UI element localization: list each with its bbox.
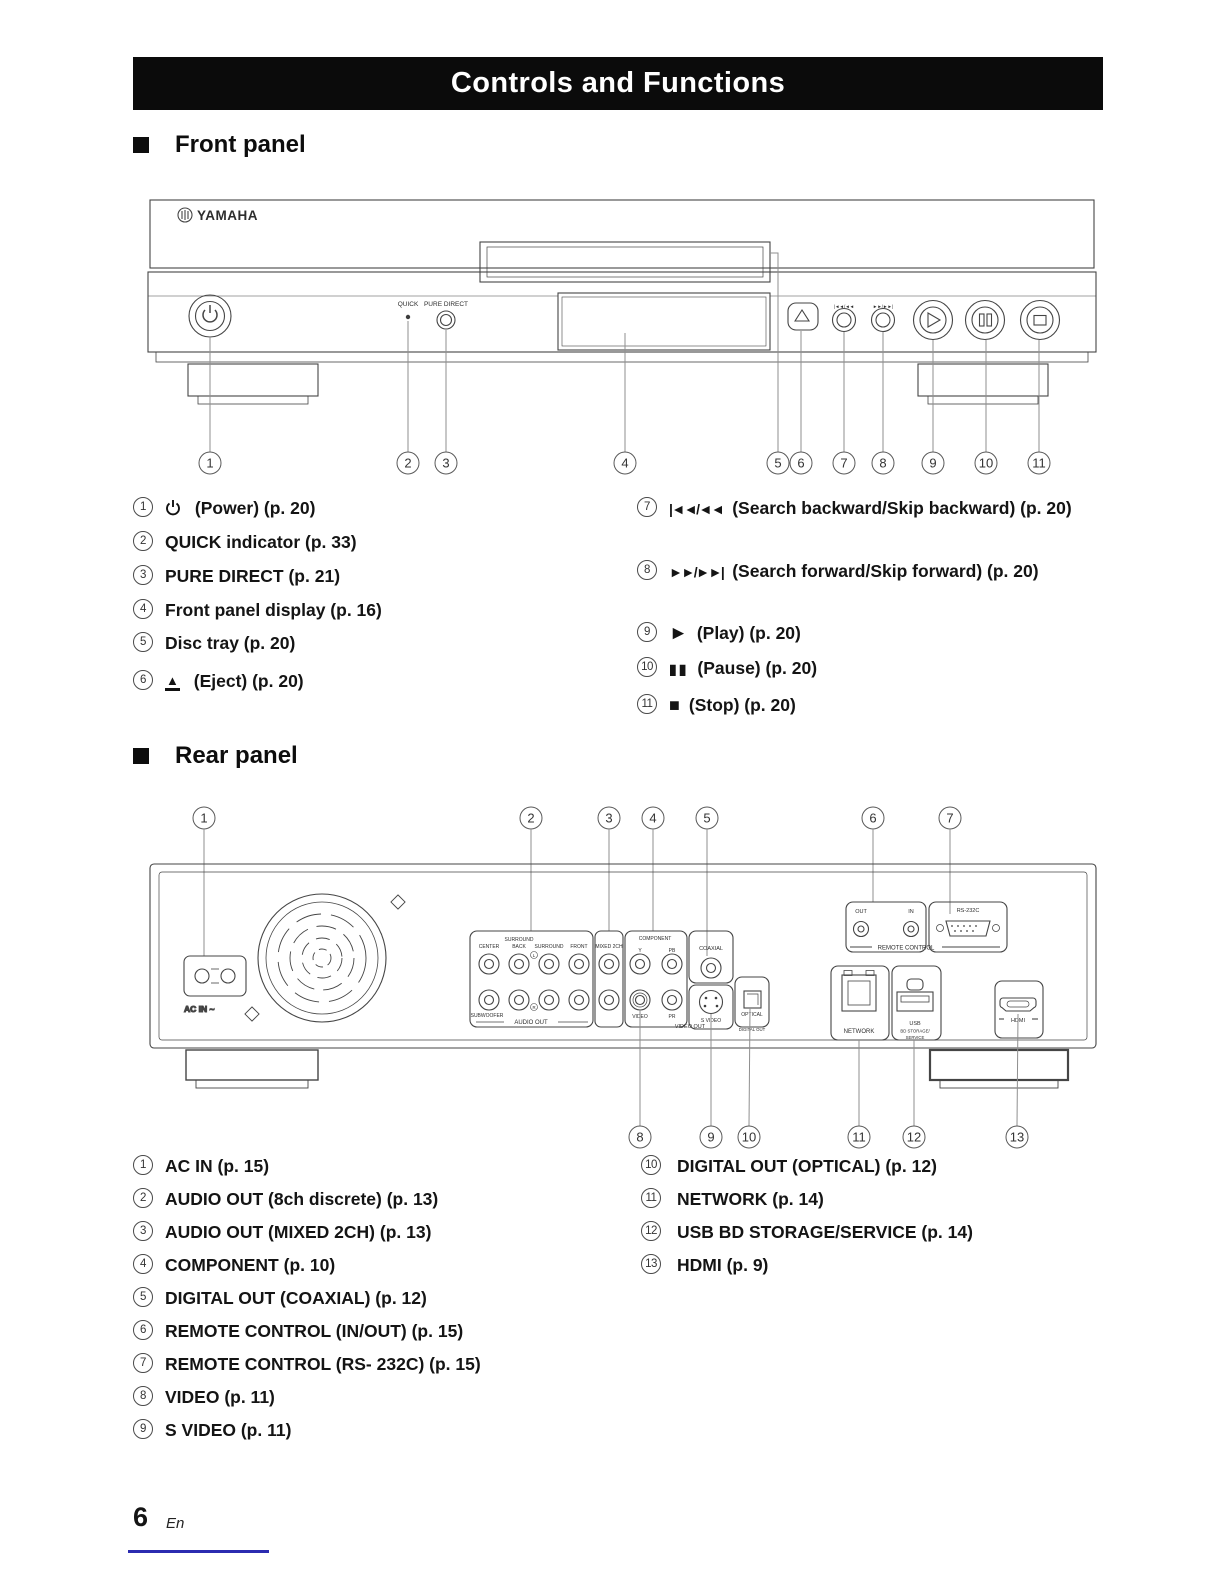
list-item: 11 ■(Stop) (p. 20) (637, 691, 1114, 719)
pause-icon: ▮▮ (669, 661, 688, 677)
callout-number: 9 (637, 622, 657, 642)
callout-number: 10 (641, 1155, 661, 1175)
svg-text:USB: USB (909, 1021, 921, 1027)
svg-text:1: 1 (200, 811, 207, 826)
list-item: 6 REMOTE CONTROL (IN/OUT) (p. 15) (133, 1317, 645, 1345)
item-text: DIGITAL OUT (COAXIAL) (p. 12) (165, 1288, 427, 1308)
callout-4: 4 (614, 452, 636, 474)
item-text: (Play) (p. 20) (697, 623, 801, 643)
callout-3: 3 (435, 452, 457, 474)
callout-number: 13 (641, 1254, 661, 1274)
skip-forward-icon: ►►/►►| (669, 564, 723, 580)
svg-text:SERVICE: SERVICE (906, 1035, 925, 1040)
callout-number: 11 (641, 1188, 661, 1208)
list-item: 12 USB BD STORAGE/SERVICE (p. 14) (641, 1218, 1157, 1246)
rear-feet (186, 1050, 1068, 1088)
rear-panel-diagram: 1 2 3 4 5 6 7 AC IN ~ (140, 795, 1100, 1155)
eject-icon: ▲ (165, 675, 180, 691)
eject-button (788, 303, 818, 330)
callout-1: 1 (199, 452, 221, 474)
svg-text:10: 10 (979, 456, 993, 471)
list-item: 8 ►►/►►|(Search forward/Skip forward) (p… (637, 557, 1109, 586)
section-bullet (133, 748, 149, 764)
section-title: Front panel (175, 131, 306, 159)
callout-8: 8 (629, 1126, 651, 1148)
item-text: S VIDEO (p. 11) (165, 1420, 291, 1440)
svg-text:4: 4 (621, 456, 628, 471)
svg-text:1: 1 (206, 456, 213, 471)
remote-in-out-jacks: OUT IN (846, 902, 926, 952)
svg-text:9: 9 (929, 456, 936, 471)
svg-text:3: 3 (442, 456, 449, 471)
callout-number: 4 (133, 599, 153, 619)
section-bullet (133, 137, 149, 153)
item-text: AUDIO OUT (MIXED 2CH) (p. 13) (165, 1222, 431, 1242)
callout-7: 7 (939, 807, 961, 829)
callout-2: 2 (520, 807, 542, 829)
svg-text:NETWORK: NETWORK (844, 1029, 875, 1035)
callout-11: 11 (848, 1126, 870, 1148)
front-callouts: 1 2 3 4 5 6 7 8 9 10 11 (199, 452, 1050, 474)
rear-leader-lines-top (204, 829, 950, 956)
list-item: 1 (Power) (p. 20) (133, 494, 635, 524)
callout-number: 12 (641, 1221, 661, 1241)
svg-text:R: R (532, 1005, 535, 1010)
item-text: QUICK indicator (p. 33) (165, 532, 357, 552)
item-text: REMOTE CONTROL (RS- 232C) (p. 15) (165, 1354, 481, 1374)
svg-text:REMOTE CONTROL: REMOTE CONTROL (878, 946, 935, 952)
list-item: 5 Disc tray (p. 20) (133, 629, 635, 657)
list-item: 2 QUICK indicator (p. 33) (133, 528, 635, 556)
svg-text:13: 13 (1010, 1130, 1024, 1145)
section-title: Rear panel (175, 742, 298, 770)
svg-text:5: 5 (774, 456, 781, 471)
svg-text:BACK: BACK (512, 944, 526, 950)
svg-text:6: 6 (797, 456, 804, 471)
svg-text:SURROUND: SURROUND (535, 944, 564, 950)
callout-11: 11 (1028, 452, 1050, 474)
list-item: 11 NETWORK (p. 14) (641, 1185, 1157, 1213)
callout-6: 6 (790, 452, 812, 474)
list-item: 3 AUDIO OUT (MIXED 2CH) (p. 13) (133, 1218, 645, 1246)
svg-text:COAXIAL: COAXIAL (699, 946, 723, 952)
page-language: En (166, 1515, 184, 1532)
list-item: 3 PURE DIRECT (p. 21) (133, 562, 635, 590)
svg-text:AUDIO OUT: AUDIO OUT (514, 1020, 548, 1026)
stop-button (1021, 301, 1060, 340)
callout-number: 11 (637, 694, 657, 714)
callout-7: 7 (833, 452, 855, 474)
play-icon: ► (669, 623, 688, 644)
callout-13: 13 (1006, 1126, 1028, 1148)
hdmi-port: HDMI (995, 981, 1043, 1038)
page-title: Controls and Functions (451, 67, 785, 100)
svg-text:PR: PR (669, 1014, 676, 1020)
callout-number: 6 (133, 670, 153, 690)
callout-number: 7 (133, 1353, 153, 1373)
coaxial-jack: COAXIAL (689, 931, 733, 983)
stop-icon: ■ (669, 695, 680, 715)
disc-tray (480, 242, 770, 282)
item-text: REMOTE CONTROL (IN/OUT) (p. 15) (165, 1321, 463, 1341)
callout-number: 10 (637, 657, 657, 677)
list-item: 10 DIGITAL OUT (OPTICAL) (p. 12) (641, 1152, 1157, 1180)
list-item: 13 HDMI (p. 9) (641, 1251, 1157, 1279)
component-jacks: COMPONENT Y PB VIDEO PR VIDEO OUT (625, 931, 706, 1030)
item-text: (Search forward/Skip forward) (p. 20) (732, 561, 1038, 581)
manual-page: Controls and Functions Front panel YAMAH… (0, 0, 1224, 1584)
callout-number: 8 (637, 560, 657, 580)
svg-text:OUT: OUT (855, 909, 867, 915)
svg-text:4: 4 (649, 811, 656, 826)
rear-callouts-top: 1 2 3 4 5 6 7 (193, 807, 961, 829)
svg-text:5: 5 (703, 811, 710, 826)
list-item: 1 AC IN (p. 15) (133, 1152, 645, 1180)
front-panel-heading: Front panel (133, 131, 306, 159)
callout-number: 1 (133, 1155, 153, 1175)
callout-1: 1 (193, 807, 215, 829)
ac-in-socket: AC IN ~ (184, 956, 246, 1014)
callout-10: 10 (738, 1126, 760, 1148)
footer-accent-line (128, 1550, 269, 1553)
svg-text:MIXED 2CH: MIXED 2CH (595, 944, 623, 950)
callout-number: 7 (637, 497, 657, 517)
svg-text:PURE DIRECT: PURE DIRECT (424, 301, 468, 308)
svg-text:COMPONENT: COMPONENT (639, 936, 672, 942)
list-item: 7 REMOTE CONTROL (RS- 232C) (p. 15) (133, 1350, 645, 1378)
list-item: 7 |◄◄/◄◄(Search backward/Skip backward) … (637, 494, 1114, 523)
list-item: 2 AUDIO OUT (8ch discrete) (p. 13) (133, 1185, 645, 1213)
svg-text:3: 3 (605, 811, 612, 826)
svg-text:DIGITAL OUT: DIGITAL OUT (739, 1027, 766, 1032)
svg-text:CENTER: CENTER (479, 944, 500, 950)
callout-number: 5 (133, 632, 153, 652)
item-text: HDMI (p. 9) (677, 1255, 768, 1275)
callout-9: 9 (700, 1126, 722, 1148)
item-text: Front panel display (p. 16) (165, 600, 382, 620)
network-port: NETWORK (831, 966, 889, 1040)
item-text: AC IN (p. 15) (165, 1156, 269, 1176)
list-item: 10 ▮▮(Pause) (p. 20) (637, 654, 1114, 683)
item-text: USB BD STORAGE/SERVICE (p. 14) (677, 1222, 973, 1242)
item-text: (Power) (p. 20) (195, 498, 316, 518)
optical-jack: OPTICAL DIGITAL OUT (735, 977, 769, 1032)
item-text: NETWORK (p. 14) (677, 1189, 824, 1209)
list-item: 9 S VIDEO (p. 11) (133, 1416, 645, 1444)
svg-text:2: 2 (527, 811, 534, 826)
svg-text:Y: Y (638, 948, 642, 954)
list-item: 9 ►(Play) (p. 20) (637, 619, 1114, 648)
svg-text:SURROUND: SURROUND (505, 937, 534, 943)
callout-6: 6 (862, 807, 884, 829)
pause-button (966, 301, 1005, 340)
rear-callouts-bottom: 8 9 10 11 12 13 (629, 1126, 1028, 1148)
svg-text:AC IN ~: AC IN ~ (184, 1004, 215, 1014)
front-panel-diagram: YAMAHA QUICK PURE DIRECT (140, 195, 1100, 480)
usb-port: USB BD STORAGE/ SERVICE (892, 966, 941, 1040)
item-text: DIGITAL OUT (OPTICAL) (p. 12) (677, 1156, 937, 1176)
svg-text:8: 8 (879, 456, 886, 471)
callout-9: 9 (922, 452, 944, 474)
skip-backward-icon: |◄◄/◄◄ (669, 501, 723, 517)
callout-10: 10 (975, 452, 997, 474)
search-forward-button: ►►/►►| (872, 304, 895, 332)
front-display (558, 293, 770, 350)
svg-text:11: 11 (1032, 456, 1046, 471)
power-icon (165, 496, 181, 524)
yamaha-logo: YAMAHA (178, 208, 258, 223)
title-bar: Controls and Functions (133, 57, 1103, 110)
play-button (914, 301, 953, 340)
callout-4: 4 (642, 807, 664, 829)
callout-2: 2 (397, 452, 419, 474)
svg-text:RS-232C: RS-232C (957, 908, 980, 914)
rear-panel-heading: Rear panel (133, 742, 298, 770)
callout-number: 6 (133, 1320, 153, 1340)
svg-text:11: 11 (852, 1130, 866, 1145)
svg-text:2: 2 (404, 456, 411, 471)
fan-vent (258, 894, 386, 1022)
svg-text:QUICK: QUICK (398, 301, 419, 308)
svg-text:FRONT: FRONT (570, 944, 587, 950)
item-text: Disc tray (p. 20) (165, 633, 295, 653)
svg-text:BD STORAGE/: BD STORAGE/ (900, 1029, 930, 1034)
mixed-2ch-jacks: MIXED 2CH (595, 931, 623, 1027)
svg-text:L: L (533, 953, 536, 958)
front-panel-body (148, 200, 1096, 362)
svg-text:PB: PB (669, 948, 676, 954)
svg-text:8: 8 (636, 1130, 643, 1145)
svg-text:SUBWOOFER: SUBWOOFER (471, 1013, 504, 1019)
item-text: VIDEO (p. 11) (165, 1387, 275, 1407)
svg-text:9: 9 (707, 1130, 714, 1145)
screw-icon (245, 895, 405, 1021)
callout-number: 5 (133, 1287, 153, 1307)
callout-12: 12 (903, 1126, 925, 1148)
item-text: PURE DIRECT (p. 21) (165, 566, 340, 586)
item-text: COMPONENT (p. 10) (165, 1255, 335, 1275)
callout-number: 8 (133, 1386, 153, 1406)
svg-text:OPTICAL: OPTICAL (741, 1012, 763, 1018)
page-number: 6 (133, 1502, 148, 1533)
item-text: AUDIO OUT (8ch discrete) (p. 13) (165, 1189, 438, 1209)
svg-text:6: 6 (869, 811, 876, 826)
rs232c-port: RS-232C REMOTE CONTROL (850, 902, 1007, 952)
callout-number: 9 (133, 1419, 153, 1439)
audio-out-jacks: CENTER SURROUND BACK SURROUND FRONT L R … (470, 931, 593, 1027)
callout-3: 3 (598, 807, 620, 829)
power-button (189, 295, 231, 337)
callout-5: 5 (696, 807, 718, 829)
item-text: (Pause) (p. 20) (697, 658, 817, 678)
item-text: (Search backward/Skip backward) (p. 20) (732, 498, 1071, 518)
callout-number: 3 (133, 565, 153, 585)
list-item: 4 COMPONENT (p. 10) (133, 1251, 645, 1279)
svg-text:7: 7 (946, 811, 953, 826)
front-feet (188, 364, 1048, 404)
svg-text:YAMAHA: YAMAHA (197, 208, 258, 223)
item-text: (Eject) (p. 20) (194, 671, 304, 691)
list-item: 8 VIDEO (p. 11) (133, 1383, 645, 1411)
svg-text:12: 12 (907, 1130, 921, 1145)
quick-indicator: QUICK (398, 301, 419, 319)
list-item: 4 Front panel display (p. 16) (133, 596, 635, 624)
callout-number: 2 (133, 531, 153, 551)
item-text: (Stop) (p. 20) (689, 695, 796, 715)
callout-8: 8 (872, 452, 894, 474)
pure-direct-button: PURE DIRECT (424, 301, 468, 329)
svg-text:7: 7 (840, 456, 847, 471)
callout-number: 1 (133, 497, 153, 517)
list-item: 6 ▲ (Eject) (p. 20) (133, 667, 635, 695)
search-backward-button: |◄◄/◄◄ (833, 304, 856, 332)
svg-text:10: 10 (742, 1130, 756, 1145)
svg-text:IN: IN (908, 909, 914, 915)
callout-number: 3 (133, 1221, 153, 1241)
callout-number: 4 (133, 1254, 153, 1274)
callout-5: 5 (767, 452, 789, 474)
callout-number: 2 (133, 1188, 153, 1208)
list-item: 5 DIGITAL OUT (COAXIAL) (p. 12) (133, 1284, 645, 1312)
